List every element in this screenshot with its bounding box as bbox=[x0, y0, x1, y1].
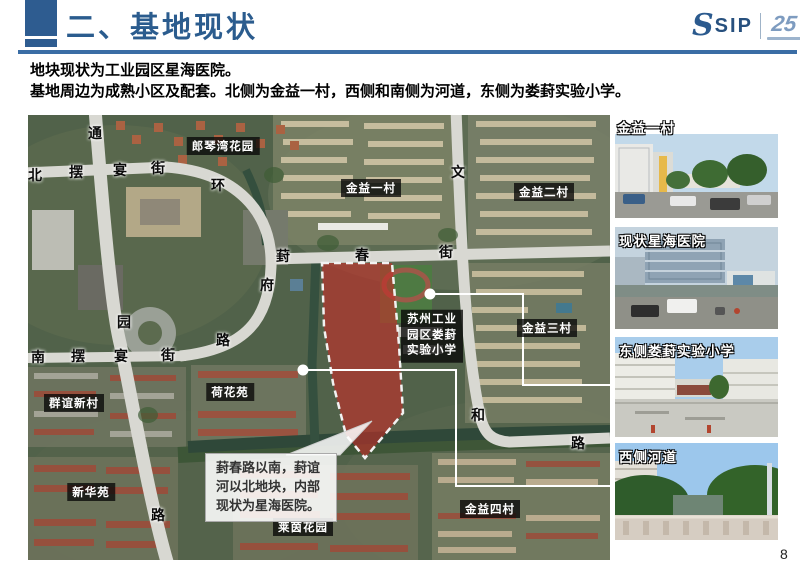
anniversary-number: 25 bbox=[770, 13, 798, 35]
page-number: 8 bbox=[780, 546, 788, 562]
area-label: 新华苑 bbox=[67, 483, 115, 501]
anniversary-mark: 25 bbox=[767, 13, 800, 40]
sip-logo: S SIP 25 bbox=[692, 8, 800, 44]
logo-divider bbox=[760, 13, 761, 39]
area-label: 金益四村 bbox=[460, 500, 520, 518]
photo-xinghai-hospital: 现状星海医院 bbox=[615, 227, 778, 329]
area-label: 金益一村 bbox=[341, 179, 401, 197]
photo-loufeng-school: 东侧娄葑实验小学 bbox=[615, 337, 778, 437]
school-label-line: 苏州工业 bbox=[407, 313, 457, 329]
area-label: 金益三村 bbox=[517, 319, 577, 337]
school-area-label: 苏州工业 园区娄葑 实验小学 bbox=[401, 310, 463, 363]
sip-swoosh-icon: S bbox=[692, 11, 714, 41]
intro-line-2: 基地周边为成熟小区及配套。北侧为金益一村，西侧和南侧为河道，东侧为娄葑实验小学。 bbox=[30, 81, 790, 102]
area-label: 群谊新村 bbox=[44, 394, 104, 412]
header-rule bbox=[18, 50, 797, 54]
site-map: 通北摆宴街环文葑春街府园路南摆宴街和路路 郎琴湾花园金益一村金益二村金益三村群谊… bbox=[28, 115, 610, 560]
photo-caption: 金益一村 bbox=[617, 117, 675, 137]
site-callout: 葑春路以南，葑谊河以北地块，内部现状为星海医院。 bbox=[205, 453, 337, 522]
photo-caption: 现状星海医院 bbox=[619, 230, 706, 250]
photo-jinyi-village: 金益一村 bbox=[615, 134, 778, 218]
school-label-line: 实验小学 bbox=[407, 344, 457, 360]
area-label: 荷花苑 bbox=[206, 383, 254, 401]
intro-text: 地块现状为工业园区星海医院。 基地周边为成熟小区及配套。北侧为金益一村，西侧和南… bbox=[30, 60, 790, 102]
header-accent-bar bbox=[25, 39, 57, 47]
photo-caption: 东侧娄葑实验小学 bbox=[619, 340, 735, 360]
page-title: 二、基地现状 bbox=[66, 4, 258, 46]
photo-caption: 西侧河道 bbox=[619, 446, 677, 466]
photo-west-river: 西侧河道 bbox=[615, 443, 778, 540]
area-label: 郎琴湾花园 bbox=[187, 137, 260, 155]
photo-jinyi-village-image bbox=[615, 134, 778, 218]
intro-line-1: 地块现状为工业园区星海医院。 bbox=[30, 60, 790, 81]
anniversary-subtext-bar bbox=[767, 37, 800, 40]
school-label-line: 园区娄葑 bbox=[407, 328, 457, 344]
sip-logo-text: SIP bbox=[715, 15, 753, 38]
area-label: 金益二村 bbox=[514, 183, 574, 201]
header-accent-block bbox=[25, 0, 57, 36]
